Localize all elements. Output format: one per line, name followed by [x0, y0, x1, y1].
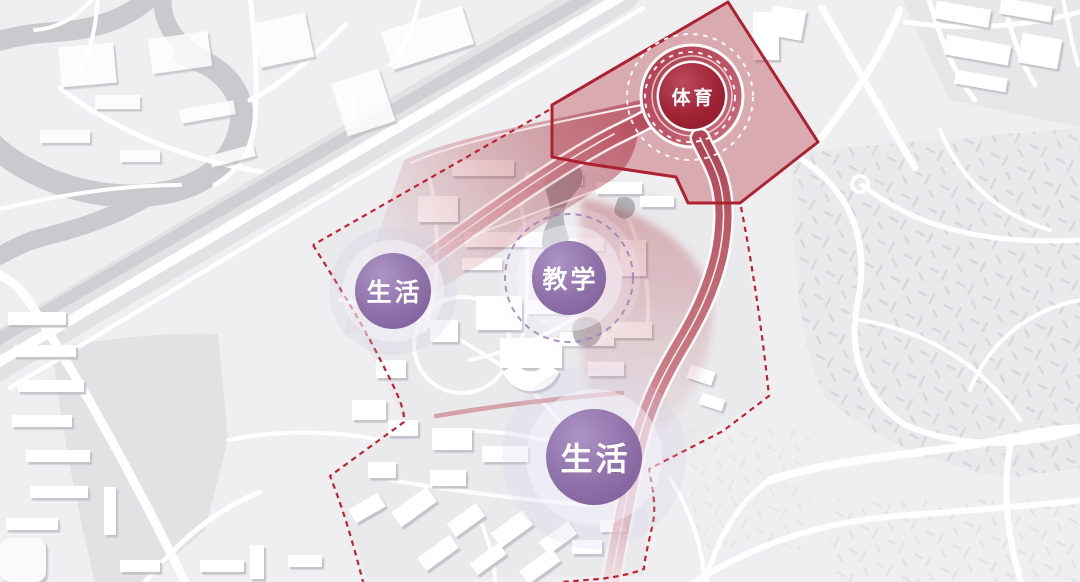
zone-bubble-teaching: 教学: [532, 241, 606, 315]
masterplan-canvas: 体育 生活 教学 生活: [0, 0, 1080, 582]
zone-label-living-south: 生活: [557, 434, 630, 480]
zone-bubble-sports: 体育: [659, 63, 725, 129]
zone-bubble-living-west: 生活: [355, 253, 431, 329]
zone-label-teaching: 教学: [539, 260, 598, 296]
zone-bubble-living-south: 生活: [546, 409, 642, 505]
zone-label-sports: 体育: [668, 83, 715, 110]
zone-label-living-west: 生活: [363, 273, 422, 309]
